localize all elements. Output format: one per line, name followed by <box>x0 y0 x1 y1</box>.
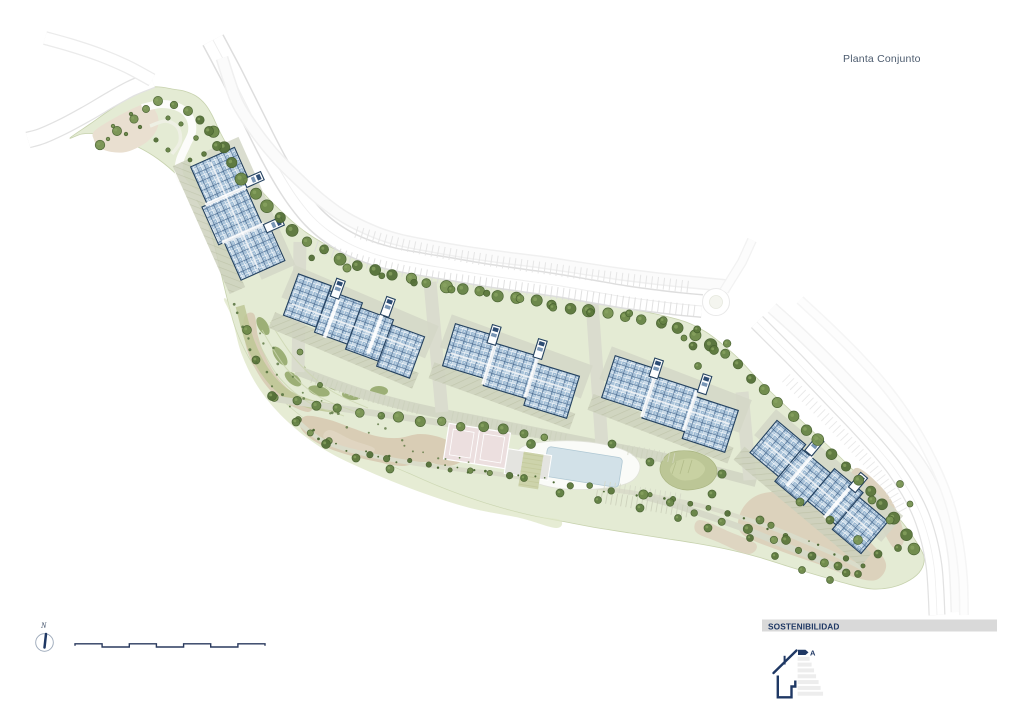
svg-text:N: N <box>40 621 47 630</box>
svg-text:A: A <box>810 649 816 658</box>
svg-text:Planta Conjunto: Planta Conjunto <box>843 53 921 65</box>
svg-text:SOSTENIBILIDAD: SOSTENIBILIDAD <box>768 621 839 631</box>
